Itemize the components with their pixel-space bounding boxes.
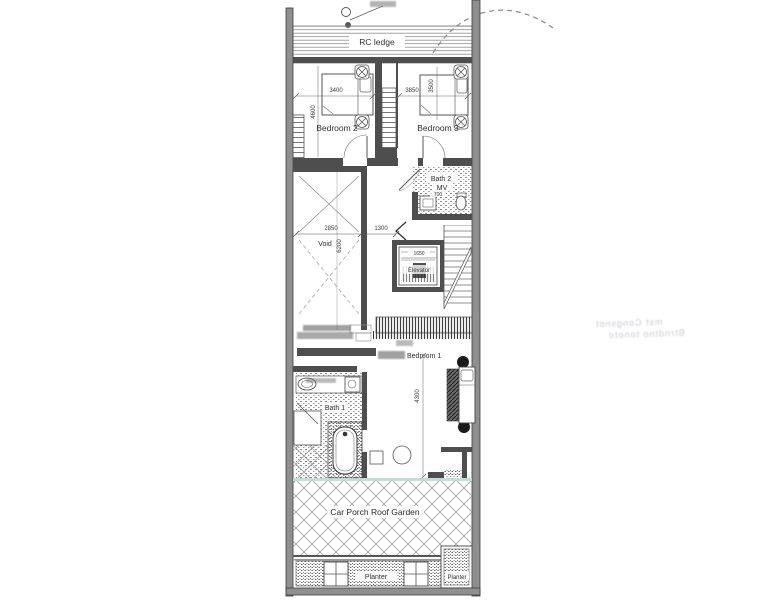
- bedroom2-wardrobe: [293, 115, 304, 165]
- illegible-note-smudge: [303, 325, 351, 331]
- bedroom1-depth-dimension: 4300: [415, 353, 426, 480]
- dimension-text: 3400: [329, 88, 343, 94]
- bedroom3-label: Bedroom 3: [417, 123, 459, 133]
- column-icon: [457, 356, 469, 368]
- floor-plan-scan: RC ledge: [0, 0, 768, 600]
- sink-icon: [420, 196, 436, 210]
- stool-icon: [370, 451, 383, 464]
- dimension-text: 700: [434, 192, 443, 198]
- void-landing-dimension-line: 2850 1300: [293, 226, 399, 237]
- side-table-icon: [393, 446, 411, 464]
- pillow-icon: [457, 78, 467, 93]
- left-party-wall: [286, 8, 293, 596]
- ceiling-fan-icon: [454, 65, 468, 79]
- void-label: Void: [318, 241, 332, 248]
- stair-hatch-band: [376, 317, 472, 333]
- illegible-note-smudge: [297, 332, 353, 339]
- dimension-text: 6200: [337, 239, 343, 253]
- floor-plan-drawing: RC ledge: [0, 0, 768, 600]
- planter-right-label: Planter: [447, 575, 466, 581]
- stair-direction-arrow: [396, 222, 406, 240]
- planter-right: Planter: [441, 546, 472, 588]
- bedrooms-front-wall: [293, 57, 472, 63]
- illegible-note-smudge: [370, 1, 396, 7]
- dimension-text: 2850: [324, 226, 338, 232]
- terrace-step: [428, 447, 472, 478]
- void-shaft: Void 6200: [293, 166, 367, 330]
- stair-plan-note: [297, 325, 371, 341]
- hall-wall: [297, 348, 376, 356]
- pillow-icon: [461, 370, 473, 381]
- void-cross-upper: [299, 176, 359, 232]
- bedroom1-label: Bedroom 1: [407, 353, 441, 360]
- stair-hatch-band-lower: [373, 331, 472, 339]
- bedroom1-wardrobe: [447, 369, 460, 421]
- sink-icon: [345, 377, 360, 392]
- vanity-counter: [296, 376, 362, 393]
- bath2: Bath 2 MV 700: [399, 166, 472, 220]
- illegible-note-smudge: [378, 351, 405, 359]
- bath2-label: Bath 2: [431, 176, 451, 183]
- ceiling-fan-icon: [355, 65, 369, 79]
- front-boundary-wall: [286, 588, 480, 595]
- bedroom2-door-swing: [344, 135, 367, 158]
- dimension-text: 1300: [374, 226, 388, 232]
- closet-shelving: [382, 88, 396, 148]
- bedrooms-rear-wall: [293, 158, 472, 166]
- bedroom2: 3400 4600 Bedroom 2: [293, 65, 376, 165]
- bedroom1: Bedroom 1 4300: [370, 340, 475, 480]
- bathtub-icon: [328, 422, 362, 478]
- dimension-text: 1650: [413, 251, 424, 257]
- illegible-note-smudge: [306, 378, 336, 383]
- planter-label: Planter: [365, 574, 388, 581]
- tree-grate-icon: [404, 562, 428, 586]
- bedroom2-bed-icon: [322, 74, 373, 115]
- toilet-icon: [456, 193, 466, 210]
- elevator-label: Elevator: [408, 268, 430, 274]
- bedroom2-depth-dimension: 4600: [311, 66, 318, 157]
- void-cross-lower: [299, 240, 359, 314]
- dimension-text: 4300: [415, 389, 421, 403]
- bath1-label: Bath 1: [325, 405, 345, 412]
- staircase: [444, 225, 472, 309]
- bedroom3: 3850 3500 Bedroom 3: [396, 65, 471, 133]
- mechanical-vent-label: MV: [437, 185, 448, 192]
- rc-ledge-label: RC ledge: [359, 37, 395, 47]
- glass-canopy-line: [293, 478, 472, 481]
- car-porch-roof-garden-label: Car Porch Roof Garden: [330, 507, 420, 517]
- bedroom-divider-wall: [375, 57, 397, 166]
- wc-compartment: [294, 411, 321, 445]
- tree-grate-icon: [324, 562, 348, 586]
- bedroom3-bed-icon: [420, 75, 468, 115]
- right-party-wall: [472, 0, 480, 596]
- bedroom2-label: Bedroom 2: [316, 123, 358, 133]
- elevator-shaft: 1650 Elevator: [392, 240, 444, 292]
- dimension-text: 4600: [311, 105, 317, 119]
- dimension-text: 3850: [405, 88, 419, 94]
- dimension-text: 3500: [429, 79, 435, 93]
- survey-marker-symbol: [342, 1, 397, 28]
- bedroom1-bed-icon: [459, 367, 475, 423]
- illegible-note-smudge: [396, 340, 413, 346]
- bedroom3-door-swing: [423, 136, 445, 158]
